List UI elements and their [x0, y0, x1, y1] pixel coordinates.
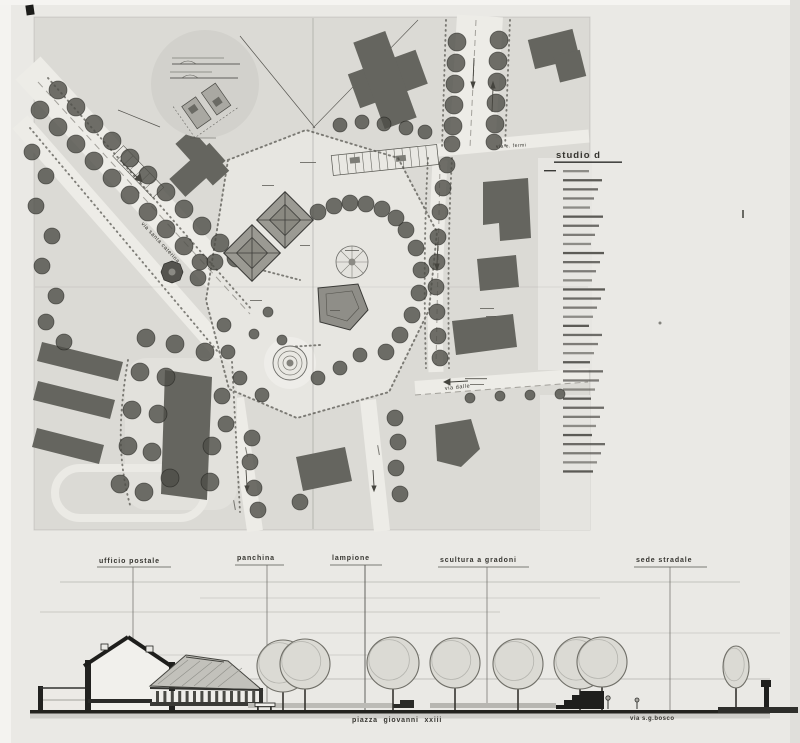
- legend-line: [563, 288, 605, 290]
- plan-tree: [34, 258, 50, 274]
- colonnade-column: [230, 691, 233, 702]
- elevation-tree: [430, 638, 480, 688]
- plan-tree: [489, 52, 507, 70]
- plan-tree: [233, 371, 247, 385]
- plan-tree: [392, 327, 408, 343]
- plan-tree: [292, 494, 308, 510]
- plan-tree: [196, 343, 214, 361]
- colonnade-column: [156, 691, 159, 702]
- ground-line: [30, 710, 770, 714]
- colonnade-column: [223, 691, 226, 702]
- plan-tree: [333, 118, 347, 132]
- legend-line: [563, 434, 592, 436]
- paving-band: [430, 703, 556, 708]
- plan-tree: [103, 169, 121, 187]
- plan-tree: [218, 416, 234, 432]
- plan-tree: [495, 391, 505, 401]
- plan-tree: [250, 502, 266, 518]
- legend-line: [563, 270, 596, 272]
- legend-line: [563, 443, 605, 445]
- plan-tree: [310, 204, 326, 220]
- plan-tree: [342, 195, 358, 211]
- scan-speck: [742, 210, 744, 218]
- plan-tree: [428, 279, 444, 295]
- legend-line: [563, 361, 590, 363]
- elevation-tree: [367, 637, 419, 689]
- legend-line: [563, 407, 604, 409]
- plan-tree: [447, 54, 465, 72]
- legend-line: [563, 261, 600, 263]
- plan-tree: [221, 345, 235, 359]
- plan-tree: [404, 307, 420, 323]
- elevation-tree: [577, 637, 627, 687]
- plan-tree: [214, 388, 230, 404]
- plan-tree: [390, 434, 406, 450]
- road-surface-right: [718, 707, 798, 713]
- legend-line: [563, 170, 589, 172]
- plan-tree: [277, 335, 287, 345]
- legend-line: [563, 179, 602, 181]
- plan-tree: [85, 115, 103, 133]
- plan-tree: [392, 486, 408, 502]
- drawing-canvas: via santa caterina via e. fermi via dall…: [0, 0, 800, 743]
- plan-tree: [242, 454, 258, 470]
- plan-tree: [525, 390, 535, 400]
- plan-tree: [413, 262, 429, 278]
- plan-tree: [103, 132, 121, 150]
- legend-line: [563, 307, 597, 309]
- plan-tree: [444, 136, 460, 152]
- plan-tree: [486, 115, 504, 133]
- legend-line: [563, 316, 593, 318]
- plan-tree: [439, 157, 455, 173]
- plan-tree: [56, 334, 72, 350]
- plan-tree: [418, 125, 432, 139]
- plan-tree: [38, 314, 54, 330]
- plan-tree: [388, 460, 404, 476]
- legend-title: studio d: [556, 150, 601, 161]
- colonnade-column: [252, 691, 255, 702]
- callout-label: scultura a gradoni: [440, 557, 517, 564]
- colonnade-column: [186, 691, 189, 702]
- plan-tree: [121, 186, 139, 204]
- plan-tree: [38, 168, 54, 184]
- legend-line: [563, 243, 591, 245]
- plan-tree: [217, 318, 231, 332]
- plan-tree: [201, 473, 219, 491]
- callout-label: lampione: [332, 555, 370, 562]
- scan-top-edge: [0, 0, 800, 5]
- colonnade-column: [237, 691, 240, 702]
- plan-tree: [111, 475, 129, 493]
- plan-tree: [448, 33, 466, 51]
- plan-tree: [157, 368, 175, 386]
- plan-tree: [445, 96, 463, 114]
- plan-tree: [326, 198, 342, 214]
- plan-tree: [192, 254, 208, 270]
- legend-line: [563, 225, 599, 227]
- colonnade-column: [215, 691, 218, 702]
- legend-line: [563, 470, 593, 472]
- corner-registration-mark: [25, 4, 34, 15]
- plan-tree: [355, 115, 369, 129]
- plan-tree: [435, 180, 451, 196]
- legend-line: [563, 388, 595, 390]
- plan-tree: [135, 483, 153, 501]
- plan-tree: [44, 228, 60, 244]
- legend-line: [563, 379, 599, 381]
- legend-line: [563, 425, 596, 427]
- plan-tree: [465, 393, 475, 403]
- plan-tree: [67, 135, 85, 153]
- plan-tree: [353, 348, 367, 362]
- legend-line: [563, 398, 591, 400]
- plan-tree: [211, 234, 229, 252]
- plan-tree: [157, 183, 175, 201]
- plan-tree: [333, 361, 347, 375]
- roof-step: [146, 646, 153, 652]
- colonnade-column: [208, 691, 211, 702]
- callout-label: panchina: [237, 555, 275, 562]
- colonnade-column: [245, 691, 248, 702]
- plan-tree: [408, 240, 424, 256]
- legend-line: [563, 461, 597, 463]
- legend-line: [563, 279, 592, 281]
- plan-tree: [49, 81, 67, 99]
- plan-tree: [143, 443, 161, 461]
- legend-line: [563, 325, 589, 327]
- scan-speck: [659, 322, 662, 325]
- plan-tree: [28, 198, 44, 214]
- legend-line: [563, 216, 603, 218]
- plan-tree: [175, 237, 193, 255]
- plan-tree: [31, 101, 49, 119]
- plan-tree: [432, 350, 448, 366]
- wall-post: [38, 686, 43, 710]
- legend-line: [563, 352, 594, 354]
- plan-tree: [432, 204, 448, 220]
- colonnade-column: [171, 691, 174, 702]
- colonnade-column: [200, 691, 203, 702]
- plan-tree: [430, 328, 446, 344]
- plan-tree: [411, 285, 427, 301]
- plan-tree: [378, 344, 394, 360]
- colonnade-column: [163, 691, 166, 702]
- plan-tree: [255, 388, 269, 402]
- plan-tree: [487, 94, 505, 112]
- label-via-sg-bosco: via s.g.bosco: [630, 716, 675, 722]
- plan-tree: [249, 329, 259, 339]
- plan-tree: [67, 98, 85, 116]
- roundabout-plan: [273, 346, 307, 380]
- plan-tree: [193, 217, 211, 235]
- legend-line: [563, 297, 601, 299]
- legend-line: [563, 252, 604, 254]
- plan-tree: [358, 196, 374, 212]
- legend-line: [563, 370, 603, 372]
- legend-line: [563, 452, 601, 454]
- legend-line: [563, 234, 595, 236]
- octagon-kiosk-plan: [161, 261, 183, 283]
- colonnade-column: [178, 691, 181, 702]
- legend-dash: [544, 170, 556, 171]
- legend-line: [563, 343, 598, 345]
- legend-line: [563, 206, 590, 208]
- callout-label: sede stradale: [636, 557, 692, 564]
- plan-tree: [48, 288, 64, 304]
- legend-line: [563, 188, 598, 190]
- label-piazza-giovanni-xxiii: piazza giovanni xxiii: [352, 717, 442, 724]
- elevation-tree: [493, 639, 543, 689]
- roof-step: [101, 644, 108, 650]
- plan-tree: [398, 222, 414, 238]
- scan-right-edge: [790, 0, 800, 743]
- legend-line: [563, 416, 600, 418]
- plan-tree: [311, 371, 325, 385]
- legend-line: [563, 334, 602, 336]
- plan-tree: [190, 270, 206, 286]
- plan-tree: [207, 254, 223, 270]
- low-wall: [43, 689, 85, 709]
- plan-building: [477, 255, 519, 291]
- plan-tree: [244, 430, 260, 446]
- plan-tree: [446, 75, 464, 93]
- elevation-tree: [280, 639, 330, 689]
- plan-tree: [131, 363, 149, 381]
- plan-tree: [203, 437, 221, 455]
- plan-tree: [149, 405, 167, 423]
- plan-tree: [387, 410, 403, 426]
- plan-tree: [85, 152, 103, 170]
- legend-line: [563, 197, 594, 199]
- scan-left-edge: [0, 0, 11, 743]
- colonnade-column: [193, 691, 196, 702]
- plan-tree: [139, 203, 157, 221]
- plan-tree: [444, 117, 462, 135]
- plan-tree: [119, 437, 137, 455]
- plan-tree: [161, 469, 179, 487]
- site-plan: via santa caterina via e. fermi via dall…: [20, 16, 592, 531]
- plan-tree: [157, 220, 175, 238]
- detail-inset-circle: [151, 30, 259, 138]
- plan-tree: [429, 304, 445, 320]
- plan-tree: [49, 118, 67, 136]
- plan-tree: [24, 144, 40, 160]
- legend-title-underline: [554, 162, 622, 163]
- plan-tree: [374, 201, 390, 217]
- scanned-drawing-sheet: via santa caterina via e. fermi via dall…: [0, 0, 800, 743]
- plan-tree: [137, 329, 155, 347]
- plan-tree: [166, 335, 184, 353]
- pavilion-base: [150, 702, 262, 706]
- plan-tree: [490, 31, 508, 49]
- plan-tree: [175, 200, 193, 218]
- plan-tree: [263, 307, 273, 317]
- plan-tree: [123, 401, 141, 419]
- callout-label: ufficio postale: [99, 558, 160, 565]
- plan-tree: [377, 117, 391, 131]
- plan-tree: [399, 121, 413, 135]
